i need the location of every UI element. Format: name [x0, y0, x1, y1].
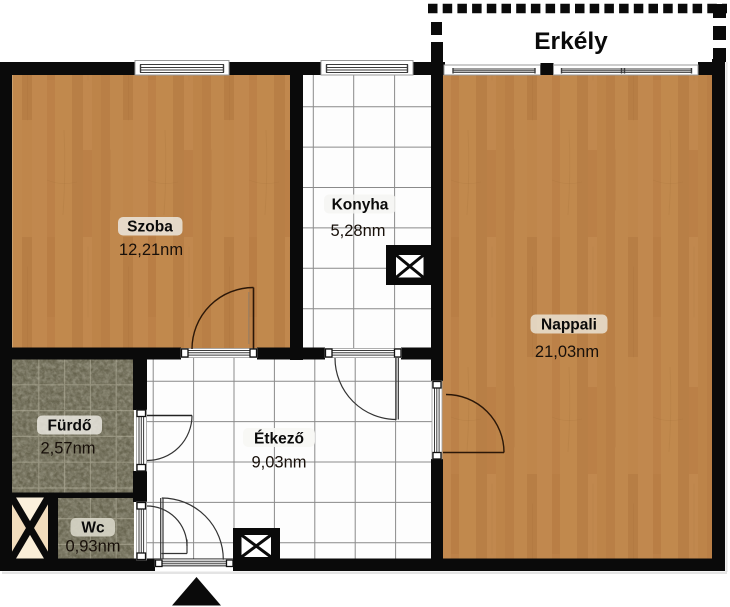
svg-text:2,57nm: 2,57nm	[40, 440, 95, 458]
svg-text:Szoba: Szoba	[127, 219, 173, 236]
svg-text:9,03nm: 9,03nm	[251, 454, 306, 472]
svg-text:Wc: Wc	[81, 520, 105, 537]
svg-text:0,93nm: 0,93nm	[65, 538, 120, 556]
svg-text:Étkező: Étkező	[254, 431, 304, 448]
svg-text:5,28nm: 5,28nm	[330, 222, 385, 240]
svg-text:12,21nm: 12,21nm	[119, 241, 183, 259]
svg-text:Nappali: Nappali	[541, 317, 597, 334]
svg-text:Erkély: Erkély	[534, 28, 608, 55]
svg-text:Fürdő: Fürdő	[48, 418, 92, 435]
svg-text:Konyha: Konyha	[332, 197, 389, 214]
svg-text:21,03nm: 21,03nm	[535, 343, 599, 361]
